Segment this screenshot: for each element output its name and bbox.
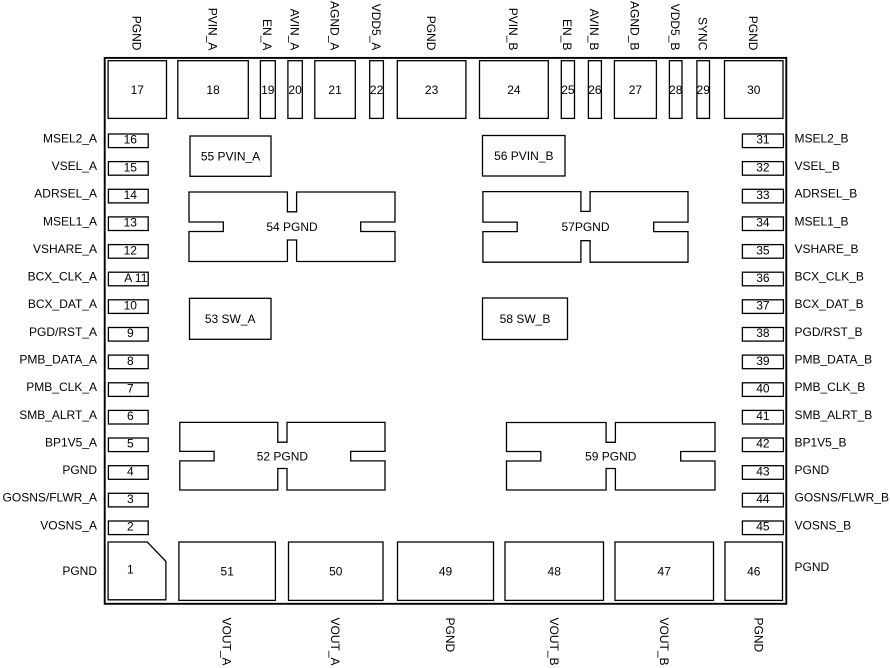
svg-text:57PGND: 57PGND xyxy=(561,220,609,234)
svg-text:45: 45 xyxy=(756,520,770,534)
svg-text:39: 39 xyxy=(756,354,770,368)
svg-text:VSEL_B: VSEL_B xyxy=(795,159,840,173)
svg-text:55 PVIN_A: 55 PVIN_A xyxy=(201,149,260,163)
svg-text:31: 31 xyxy=(756,133,770,147)
svg-text:PGND: PGND xyxy=(751,618,765,653)
svg-text:42: 42 xyxy=(756,437,770,451)
svg-text:40: 40 xyxy=(756,382,770,396)
svg-text:10: 10 xyxy=(124,299,138,313)
svg-text:38: 38 xyxy=(756,326,770,340)
svg-text:PGND: PGND xyxy=(424,16,438,51)
svg-text:PMB_CLK_B: PMB_CLK_B xyxy=(795,380,866,394)
svg-text:2: 2 xyxy=(127,520,134,534)
svg-text:PGD/RST_B: PGD/RST_B xyxy=(795,325,863,339)
svg-text:58 SW_B: 58 SW_B xyxy=(500,312,551,326)
svg-text:51: 51 xyxy=(221,564,235,578)
svg-text:54 PGND: 54 PGND xyxy=(266,220,318,234)
svg-text:EN_B: EN_B xyxy=(560,19,574,50)
svg-text:MSEL2_A: MSEL2_A xyxy=(43,131,97,145)
svg-text:VOSNS_A: VOSNS_A xyxy=(40,518,97,532)
svg-text:BCX_DAT_A: BCX_DAT_A xyxy=(28,297,97,311)
svg-text:AGND_A: AGND_A xyxy=(327,1,341,50)
svg-text:22: 22 xyxy=(370,83,384,97)
svg-text:23: 23 xyxy=(425,83,439,97)
svg-text:AVIN_A: AVIN_A xyxy=(287,9,301,51)
svg-text:21: 21 xyxy=(328,83,342,97)
svg-text:29: 29 xyxy=(697,83,711,97)
svg-text:AVIN_B: AVIN_B xyxy=(587,9,601,51)
svg-text:PGND: PGND xyxy=(746,16,760,51)
svg-text:PMB_CLK_A: PMB_CLK_A xyxy=(26,380,97,394)
svg-text:49: 49 xyxy=(439,564,453,578)
svg-text:28: 28 xyxy=(669,83,683,97)
svg-text:PMB_DATA_A: PMB_DATA_A xyxy=(19,353,97,367)
svg-text:ADRSEL_A: ADRSEL_A xyxy=(34,187,97,201)
svg-text:AGND_B: AGND_B xyxy=(628,1,642,50)
svg-text:48: 48 xyxy=(548,564,562,578)
svg-text:VDD5_A: VDD5_A xyxy=(369,4,383,51)
svg-text:SMB_ALRT_B: SMB_ALRT_B xyxy=(795,408,873,422)
svg-text:PVIN_B: PVIN_B xyxy=(506,8,520,51)
svg-text:17: 17 xyxy=(131,83,145,97)
svg-text:SMB_ALRT_A: SMB_ALRT_A xyxy=(19,408,97,422)
svg-text:BP1V5_A: BP1V5_A xyxy=(45,435,97,449)
svg-text:PGND: PGND xyxy=(795,560,830,574)
svg-text:GOSNS/FLWR_A: GOSNS/FLWR_A xyxy=(3,491,97,505)
svg-text:34: 34 xyxy=(756,216,770,230)
svg-text:44: 44 xyxy=(756,492,770,506)
svg-text:46: 46 xyxy=(747,564,761,578)
svg-text:35: 35 xyxy=(756,243,770,257)
svg-text:MSEL2_B: MSEL2_B xyxy=(795,131,849,145)
svg-text:32: 32 xyxy=(756,160,770,174)
svg-text:BCX_CLK_B: BCX_CLK_B xyxy=(795,270,864,284)
svg-text:3: 3 xyxy=(127,492,134,506)
svg-text:EN_A: EN_A xyxy=(260,19,274,50)
svg-text:4: 4 xyxy=(127,464,134,478)
svg-text:30: 30 xyxy=(747,83,761,97)
svg-text:VSHARE_B: VSHARE_B xyxy=(795,242,859,256)
svg-text:BCX_DAT_B: BCX_DAT_B xyxy=(795,297,864,311)
svg-text:13: 13 xyxy=(124,216,138,230)
svg-text:VOUT_B: VOUT_B xyxy=(547,618,561,666)
svg-text:BP1V5_B: BP1V5_B xyxy=(795,435,847,449)
svg-text:47: 47 xyxy=(658,564,672,578)
svg-text:18: 18 xyxy=(206,83,220,97)
svg-text:43: 43 xyxy=(756,464,770,478)
svg-text:PMB_DATA_B: PMB_DATA_B xyxy=(795,353,873,367)
svg-text:ADRSEL_B: ADRSEL_B xyxy=(795,187,858,201)
svg-text:6: 6 xyxy=(127,409,134,423)
svg-text:9: 9 xyxy=(127,326,134,340)
svg-text:VOUT_A: VOUT_A xyxy=(328,618,342,666)
svg-text:PGND: PGND xyxy=(62,564,97,578)
svg-text:PGND: PGND xyxy=(130,16,144,51)
svg-text:MSEL1_A: MSEL1_A xyxy=(43,214,97,228)
svg-text:12: 12 xyxy=(124,243,138,257)
svg-text:GOSNS/FLWR_B: GOSNS/FLWR_B xyxy=(795,491,889,505)
svg-text:27: 27 xyxy=(629,83,643,97)
svg-text:7: 7 xyxy=(127,382,134,396)
svg-text:50: 50 xyxy=(329,564,343,578)
svg-text:56 PVIN_B: 56 PVIN_B xyxy=(494,149,553,163)
svg-text:VSEL_A: VSEL_A xyxy=(52,159,97,173)
svg-text:16: 16 xyxy=(124,133,138,147)
svg-text:52 PGND: 52 PGND xyxy=(257,449,309,463)
svg-text:PGND: PGND xyxy=(795,463,830,477)
svg-text:BCX_CLK_A: BCX_CLK_A xyxy=(28,270,97,284)
svg-text:24: 24 xyxy=(507,83,521,97)
svg-text:26: 26 xyxy=(588,83,602,97)
svg-text:25: 25 xyxy=(561,83,575,97)
svg-text:VDD5_B: VDD5_B xyxy=(668,4,682,51)
svg-text:A 11: A 11 xyxy=(124,271,147,285)
svg-text:15: 15 xyxy=(124,160,138,174)
svg-text:MSEL1_B: MSEL1_B xyxy=(795,214,849,228)
svg-text:PGD/RST_A: PGD/RST_A xyxy=(29,325,97,339)
svg-text:5: 5 xyxy=(127,437,134,451)
svg-text:VOUT_A: VOUT_A xyxy=(220,618,234,666)
svg-text:SYNC: SYNC xyxy=(695,17,709,51)
svg-text:59 PGND: 59 PGND xyxy=(585,449,637,463)
svg-text:PGND: PGND xyxy=(443,618,457,653)
svg-text:VOSNS_B: VOSNS_B xyxy=(795,518,852,532)
svg-text:VOUT_B: VOUT_B xyxy=(657,618,671,666)
svg-text:41: 41 xyxy=(756,409,770,423)
svg-text:VSHARE_A: VSHARE_A xyxy=(33,242,97,256)
svg-text:19: 19 xyxy=(261,83,275,97)
svg-text:53 SW_A: 53 SW_A xyxy=(205,312,256,326)
svg-text:37: 37 xyxy=(756,299,770,313)
svg-text:PVIN_A: PVIN_A xyxy=(205,8,219,51)
svg-text:PGND: PGND xyxy=(62,463,97,477)
svg-text:36: 36 xyxy=(756,271,770,285)
svg-text:1: 1 xyxy=(127,562,134,576)
svg-text:14: 14 xyxy=(124,188,138,202)
svg-text:8: 8 xyxy=(127,354,134,368)
svg-text:33: 33 xyxy=(756,188,770,202)
svg-text:20: 20 xyxy=(288,83,302,97)
